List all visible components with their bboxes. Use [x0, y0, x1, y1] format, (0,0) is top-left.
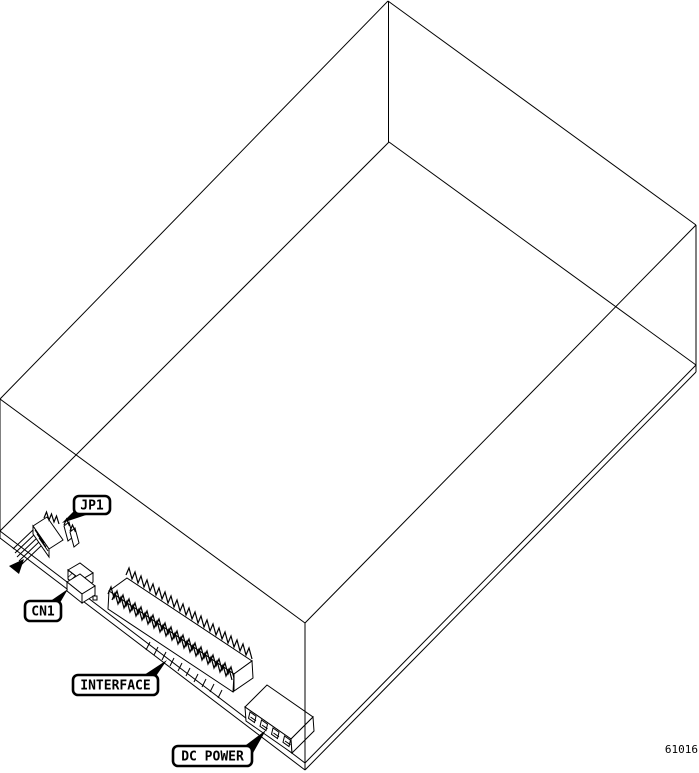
pcb-edge: [0, 365, 696, 770]
pin1-arrow-icon: [9, 559, 24, 574]
cn1-callout-label: CN1: [31, 605, 55, 620]
dc-power-callout-label: DC POWER: [181, 750, 244, 765]
dc-power-callout: DC POWER: [173, 730, 266, 766]
cn1-connector: [67, 563, 97, 603]
interface-callout: INTERFACE: [73, 660, 167, 695]
drive-connector-diagram: JP1 CN1 INTERFACE DC POWER 61016: [0, 0, 699, 773]
figure-number: 61016: [665, 743, 698, 756]
cn1-callout: CN1: [25, 589, 68, 621]
drive-case-outline: [0, 1, 696, 623]
interface-callout-label: INTERFACE: [80, 679, 150, 694]
jp1-callout-label: JP1: [80, 499, 104, 514]
jp1-callout: JP1: [62, 496, 110, 523]
